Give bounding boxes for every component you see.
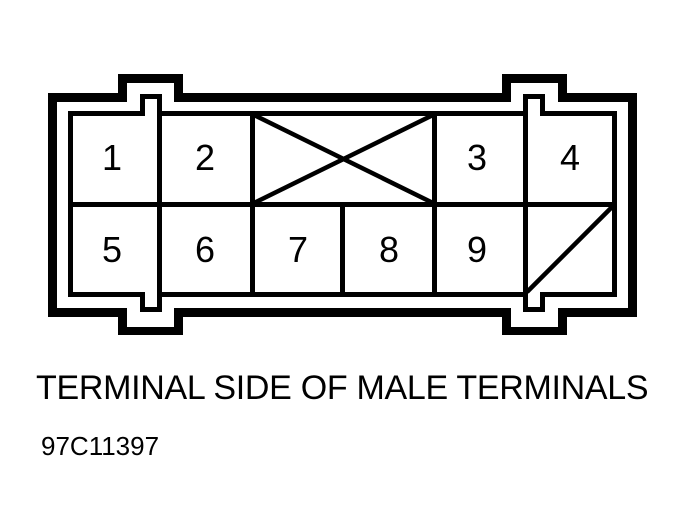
pin-1-label: 1 (102, 137, 122, 178)
pin-8-label: 8 (379, 229, 399, 270)
diagram-canvas: 1 2 3 4 5 6 7 8 9 TERMINAL SIDE OF MALE … (0, 0, 686, 531)
pin-5-label: 5 (102, 229, 122, 270)
pin-7-label: 7 (288, 229, 308, 270)
pin-4-label: 4 (560, 137, 580, 178)
diagram-caption: TERMINAL SIDE OF MALE TERMINALS (36, 371, 648, 405)
figure-number: 97C11397 (41, 433, 159, 459)
pin-2-label: 2 (195, 137, 215, 178)
pin-6-label: 6 (195, 229, 215, 270)
pin-3-label: 3 (467, 137, 487, 178)
pin-9-label: 9 (467, 229, 487, 270)
